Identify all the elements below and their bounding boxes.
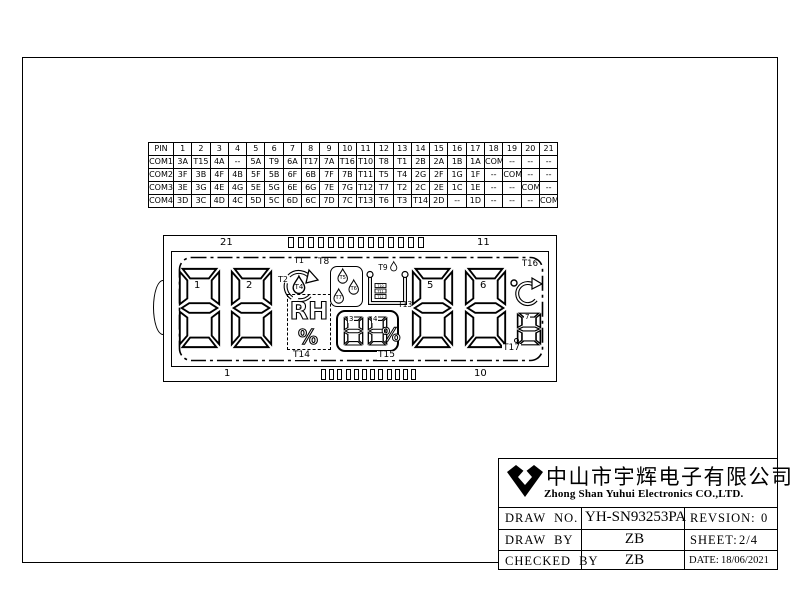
connector-tooth (337, 369, 342, 380)
connector-tooth (418, 237, 424, 248)
t4-label: T4 (294, 283, 304, 291)
connector-tooth (388, 237, 394, 248)
pin-segment-cell: -- (521, 156, 539, 169)
connector-tooth (329, 369, 334, 380)
company-logo-icon (506, 464, 544, 498)
pin-segment-cell: 6D (283, 195, 301, 208)
connector-tooth (362, 369, 367, 380)
pin-segment-cell: 5D (247, 195, 265, 208)
segment (466, 312, 474, 344)
pin-number-cell: 16 (448, 143, 466, 156)
pin-segment-cell: 7A (320, 156, 338, 169)
t8-label: T8 (317, 258, 330, 267)
pin-segment-cell: COM1 (485, 156, 503, 169)
pin-segment-cell: 6B (302, 169, 320, 182)
title-block-divider (499, 550, 777, 551)
digit-7-label: 7 (524, 314, 530, 321)
segment (498, 312, 506, 344)
t10-label: T10 (376, 284, 383, 288)
draw-no-value: YH-SN93253PA (585, 510, 684, 525)
pin-number-cell: 10 (338, 143, 356, 156)
pin-segment-cell: -- (448, 195, 466, 208)
digit-5 (410, 266, 455, 350)
segment (346, 342, 362, 345)
segment (368, 332, 372, 344)
com-label-cell: COM1 (149, 156, 174, 169)
segment (445, 312, 453, 344)
t15-label: T15 (377, 351, 396, 360)
tank-rim-right (402, 272, 408, 278)
pin-segment-cell: 2G (411, 169, 429, 182)
celsius-arrowhead-icon (532, 278, 542, 289)
segment (469, 338, 503, 348)
connector-tooth (387, 369, 392, 380)
segment (264, 272, 272, 304)
pin-segment-cell: T6 (375, 195, 393, 208)
pin-number-cell: 18 (485, 143, 503, 156)
pin-segment-cell: 4G (228, 182, 246, 195)
segment (344, 332, 348, 344)
sheet-value: 2/4 (739, 534, 758, 547)
pin-segment-cell: 3C (192, 195, 210, 208)
pin-segment-cell: 1A (466, 156, 484, 169)
seven-segment-outline (410, 266, 455, 350)
pin-segment-cell: 1D (466, 195, 484, 208)
pin-segment-cell: 6A (283, 156, 301, 169)
pin-segment-cell: 6F (283, 169, 301, 182)
pin-segment-cell: 3F (174, 169, 192, 182)
pin-header-cell: PIN (149, 143, 174, 156)
segment (415, 303, 451, 313)
segment (536, 331, 540, 344)
pin-segment-cell: 3A (174, 156, 192, 169)
pin-number-cell: 8 (302, 143, 320, 156)
engineering-drawing-page: PIN123456789101112131415161718192021COM1… (0, 0, 800, 608)
pin-number-cell: 17 (466, 143, 484, 156)
connector-tooth (378, 369, 383, 380)
pin-segment-cell: 6G (302, 182, 320, 195)
pin-segment-cell: 5G (265, 182, 283, 195)
pin-number-cell: 21 (539, 143, 557, 156)
draw-by-label: DRAW BY (505, 534, 573, 547)
pin-segment-cell: 3E (174, 182, 192, 195)
com-label-cell: COM2 (149, 169, 174, 182)
connector-tooth (368, 237, 374, 248)
t2-label: T2 (277, 275, 288, 284)
pin-segment-cell: T8 (375, 156, 393, 169)
pin-segment-cell: T14 (411, 195, 429, 208)
box-percent-sign: % (381, 319, 401, 347)
t6-label: T6 (349, 286, 356, 292)
pin-number-cell: 5 (247, 143, 265, 156)
pin-segment-cell: 2B (411, 156, 429, 169)
segment (498, 272, 506, 304)
pin-segment-cell: 1F (466, 169, 484, 182)
connector-tooth (348, 237, 354, 248)
pin-segment-cell: 5E (247, 182, 265, 195)
pin-segment-cell: -- (521, 195, 539, 208)
pin-segment-cell: 1C (448, 182, 466, 195)
connector-tooth (308, 237, 314, 248)
pin-number-cell: 2 (192, 143, 210, 156)
pin-segment-cell: 2F (430, 169, 448, 182)
bottom-connector-comb (321, 369, 421, 381)
pin-segment-cell: -- (539, 182, 557, 195)
segment (183, 338, 217, 348)
pin-segment-cell: T2 (393, 182, 411, 195)
seven-segment-outline (229, 266, 274, 350)
connector-tooth (408, 237, 414, 248)
connector-tooth (395, 369, 400, 380)
pin-number-cell: 11 (356, 143, 374, 156)
pin-segment-cell: -- (485, 169, 503, 182)
connector-tooth (378, 237, 384, 248)
degree-circle-icon (511, 280, 517, 286)
rh-percent-sign: % (298, 325, 318, 349)
connector-tooth (288, 237, 294, 248)
pin-segment-cell: -- (503, 156, 521, 169)
pin-segment-cell: 1E (466, 182, 484, 195)
t16-label: T16 (521, 259, 538, 269)
water-drop-icon (391, 262, 397, 271)
pin-number-cell: 19 (503, 143, 521, 156)
digit-1-label: 1 (193, 281, 201, 291)
segment (235, 269, 269, 279)
connector-tooth (411, 369, 416, 380)
segment (413, 312, 421, 344)
segment (416, 338, 450, 348)
pin-segment-cell: 4F (210, 169, 228, 182)
company-name-en: Zhong Shan Yuhui Electronics CO.,LTD. (544, 488, 743, 500)
pin-segment-cell: 6E (283, 182, 301, 195)
pin-segment-cell: 7B (338, 169, 356, 182)
pin-segment-cell: T7 (375, 182, 393, 195)
segment (235, 338, 269, 348)
pin-segment-cell: 4B (228, 169, 246, 182)
pin-segment-cell: 3B (192, 169, 210, 182)
connector-tooth (298, 237, 304, 248)
segment (359, 332, 363, 344)
t13-label: T13 (397, 300, 412, 309)
pin-segment-cell: -- (521, 169, 539, 182)
cycle-arrowhead-icon (306, 270, 318, 283)
rh-text: RH (290, 297, 329, 325)
pin-segment-cell: T17 (302, 156, 320, 169)
pin-segment-cell: T15 (192, 156, 210, 169)
segment (180, 312, 188, 344)
pin-segment-cell: 2C (411, 182, 429, 195)
pin-number-cell: 12 (375, 143, 393, 156)
pin-segment-cell: 5B (265, 169, 283, 182)
pin-segment-cell: 3G (192, 182, 210, 195)
pin-number-bottom-right: 10 (474, 369, 487, 379)
pin-number-cell: 13 (393, 143, 411, 156)
segment (519, 341, 539, 345)
connector-tooth (321, 369, 326, 380)
pin-number-cell: 3 (210, 143, 228, 156)
connector-tooth (328, 237, 334, 248)
pin-segment-cell: 5C (265, 195, 283, 208)
pin-number-top-left: 21 (220, 238, 233, 248)
segment (519, 327, 540, 331)
pin-number-cell: 6 (265, 143, 283, 156)
seven-segment-outline (463, 266, 508, 350)
t11-label: T11 (376, 289, 383, 293)
digit-2-label: 2 (245, 281, 253, 291)
pin-segment-cell: T10 (356, 156, 374, 169)
top-connector-comb (288, 237, 428, 249)
title-block-divider (499, 507, 777, 508)
pin-segment-cell: 1B (448, 156, 466, 169)
pin-segment-cell: 3D (174, 195, 192, 208)
segment (183, 269, 217, 279)
segment (212, 272, 220, 304)
pin-number-top-right: 11 (477, 238, 490, 248)
water-tank-icon: T9 T10 T11 T12 T13 (362, 258, 412, 312)
connector-tooth (338, 237, 344, 248)
digit-2 (229, 266, 274, 350)
pin-segment-cell: 7E (320, 182, 338, 195)
segment (445, 272, 453, 304)
pin-segment-cell: -- (503, 195, 521, 208)
digit-3-label: 3 (348, 316, 354, 323)
digit-6 (463, 266, 508, 350)
connector-tooth (398, 237, 404, 248)
pin-segment-cell: T1 (393, 156, 411, 169)
pin-segment-cell: -- (503, 182, 521, 195)
pin-segment-cell: 5A (247, 156, 265, 169)
connector-tooth (318, 237, 324, 248)
title-block-divider (499, 529, 777, 530)
com-label-cell: COM4 (149, 195, 174, 208)
segment (536, 314, 540, 327)
pin-segment-cell: T5 (375, 169, 393, 182)
title-block: 中山市宇辉电子有限公司 Zhong Shan Yuhui Electronics… (498, 458, 778, 570)
pin-segment-cell: 2D (430, 195, 448, 208)
pin-segment-cell: 7C (338, 195, 356, 208)
date-value: 18/06/2021 (721, 556, 769, 567)
pin-segment-cell: 7F (320, 169, 338, 182)
connector-tooth (346, 369, 351, 380)
segment (468, 303, 504, 313)
pin-number-cell: 7 (283, 143, 301, 156)
connector-tooth (354, 369, 359, 380)
pin-segment-cell: 6C (302, 195, 320, 208)
pin-segment-cell: T4 (393, 169, 411, 182)
t17-label: T17 (502, 344, 521, 353)
segment (345, 329, 362, 332)
checked-by-value: ZB (585, 553, 684, 568)
drops-box-contents: T5 T6 T7 (330, 266, 363, 307)
celsius-cycle-icon: T16 (506, 256, 546, 308)
pin-segment-cell: COM2 (503, 169, 521, 182)
segment (182, 303, 218, 313)
t1-label: T1 (293, 256, 304, 265)
pin-segment-cell: T16 (338, 156, 356, 169)
pin-segment-cell: 4D (210, 195, 228, 208)
pin-segment-cell: -- (228, 156, 246, 169)
digit-4-label: 4 (372, 316, 378, 323)
pin-segment-cell: -- (485, 182, 503, 195)
pin-segment-cell: 2E (430, 182, 448, 195)
pin-number-bottom-left: 1 (224, 369, 230, 379)
t7-label: T7 (334, 295, 341, 301)
t9-label: T9 (377, 263, 388, 272)
percent-icon: % (381, 324, 400, 346)
segment (232, 312, 240, 344)
pin-number-cell: 14 (411, 143, 429, 156)
pin-segment-cell: -- (539, 169, 557, 182)
segment (469, 269, 503, 279)
pin-segment-cell: COM4 (539, 195, 557, 208)
pin-segment-cell: 5F (247, 169, 265, 182)
segment (466, 272, 474, 304)
t12-label: T12 (376, 295, 383, 299)
segment (416, 269, 450, 279)
connector-tooth (403, 369, 408, 380)
pin-segment-cell: 2A (430, 156, 448, 169)
segment (234, 303, 270, 313)
pin-number-cell: 15 (430, 143, 448, 156)
digit-6-label: 6 (479, 281, 487, 291)
segment (264, 312, 272, 344)
segment (413, 272, 421, 304)
segment (359, 318, 363, 330)
draw-by-value: ZB (585, 532, 684, 547)
pin-segment-cell: T12 (356, 182, 374, 195)
pin-number-cell: 9 (320, 143, 338, 156)
company-name-cn: 中山市宇辉电子有限公司 (546, 461, 794, 491)
pin-segment-cell: 4E (210, 182, 228, 195)
t5-label: T5 (338, 275, 345, 281)
pin-number-cell: 4 (228, 143, 246, 156)
pin-segment-cell: -- (485, 195, 503, 208)
revision-label: REVSION: (690, 512, 756, 525)
revision-value: 0 (761, 512, 768, 525)
pin-segment-cell: -- (539, 156, 557, 169)
pin-segment-cell: 4C (228, 195, 246, 208)
pin-number-cell: 1 (174, 143, 192, 156)
segment (180, 272, 188, 304)
t14-label: T14 (292, 351, 311, 360)
connector-tooth (370, 369, 375, 380)
pin-segment-cell: T11 (356, 169, 374, 182)
segment (518, 314, 522, 327)
segment (232, 272, 240, 304)
pin-number-cell: 20 (521, 143, 539, 156)
rh-percent-box: RH % (287, 294, 331, 350)
pin-segment-cell: T3 (393, 195, 411, 208)
date-label: DATE: (689, 556, 719, 567)
pin-segment-cell: 7G (338, 182, 356, 195)
tank-rim-left (367, 272, 373, 278)
pin-segment-cell: 7D (320, 195, 338, 208)
pin-segment-cell: T13 (356, 195, 374, 208)
pin-assignment-table: PIN123456789101112131415161718192021COM1… (148, 142, 558, 208)
digit-1 (177, 266, 222, 350)
pin-segment-cell: COM3 (521, 182, 539, 195)
connector-tooth (358, 237, 364, 248)
com-label-cell: COM3 (149, 182, 174, 195)
draw-no-label: DRAW NO. (505, 512, 578, 525)
sheet-label: SHEET: (690, 534, 738, 547)
pin-segment-cell: 1G (448, 169, 466, 182)
segment (212, 312, 220, 344)
pin-segment-cell: 4A (210, 156, 228, 169)
seven-segment-outline (177, 266, 222, 350)
pin-segment-cell: T9 (265, 156, 283, 169)
digit-5-label: 5 (426, 281, 434, 291)
